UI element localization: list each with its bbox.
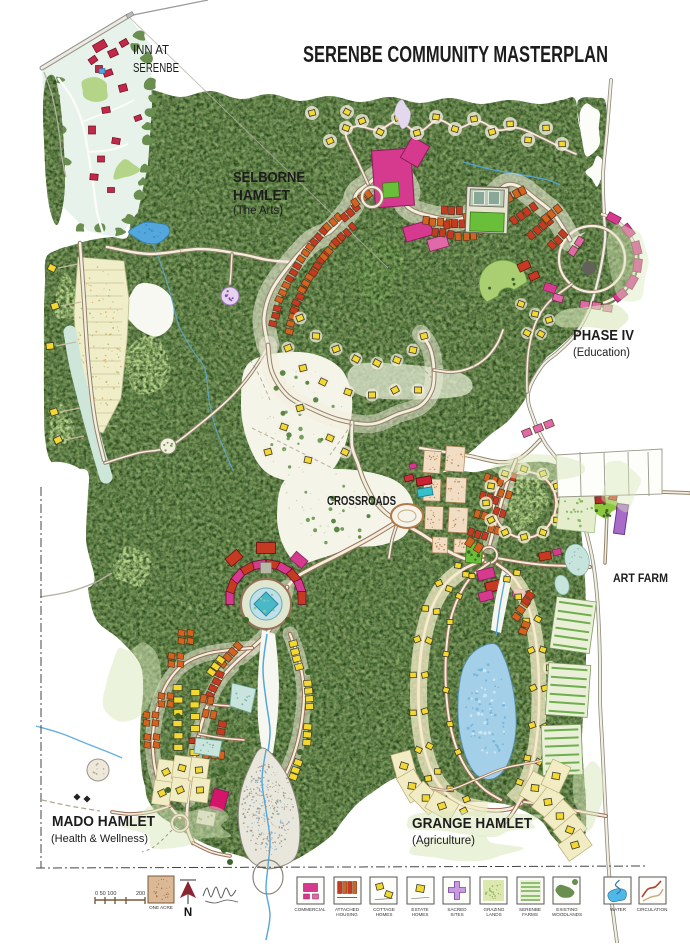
svg-text:WOODLANDS: WOODLANDS bbox=[552, 912, 582, 917]
svg-text:WATER: WATER bbox=[610, 907, 627, 912]
svg-text:MADO HAMLET: MADO HAMLET bbox=[52, 814, 155, 830]
svg-text:N: N bbox=[184, 907, 192, 919]
svg-text:(Health & Wellness): (Health & Wellness) bbox=[51, 833, 148, 845]
svg-text:HAMLET: HAMLET bbox=[233, 187, 290, 204]
svg-text:FARMS: FARMS bbox=[522, 912, 538, 917]
svg-text:PHASE IV: PHASE IV bbox=[573, 328, 634, 344]
svg-text:HOUSING: HOUSING bbox=[336, 912, 358, 917]
svg-text:CROSSROADS: CROSSROADS bbox=[327, 494, 396, 508]
svg-text:200: 200 bbox=[136, 891, 145, 897]
svg-text:0 50 100: 0 50 100 bbox=[95, 891, 116, 897]
svg-text:ONE ACRE: ONE ACRE bbox=[149, 905, 173, 910]
svg-text:(Agriculture): (Agriculture) bbox=[412, 835, 475, 847]
svg-text:INN AT: INN AT bbox=[133, 43, 169, 57]
svg-text:(Education): (Education) bbox=[573, 347, 630, 359]
svg-text:ART FARM: ART FARM bbox=[613, 573, 668, 585]
svg-text:SELBORNE: SELBORNE bbox=[233, 169, 305, 186]
svg-text:SERENBE: SERENBE bbox=[133, 61, 179, 75]
svg-text:COMMERCIAL: COMMERCIAL bbox=[294, 907, 326, 912]
svg-text:SITES: SITES bbox=[450, 912, 463, 917]
svg-text:GRANGE HAMLET: GRANGE HAMLET bbox=[412, 815, 532, 832]
svg-text:HOMES: HOMES bbox=[412, 912, 429, 917]
svg-text:SERENBE COMMUNITY MASTERPLAN: SERENBE COMMUNITY MASTERPLAN bbox=[303, 41, 608, 67]
svg-text:HOMES: HOMES bbox=[376, 912, 393, 917]
svg-text:CIRCULATION: CIRCULATION bbox=[637, 907, 668, 912]
svg-text:(The Arts): (The Arts) bbox=[233, 205, 283, 217]
svg-text:LANDS: LANDS bbox=[486, 912, 501, 917]
